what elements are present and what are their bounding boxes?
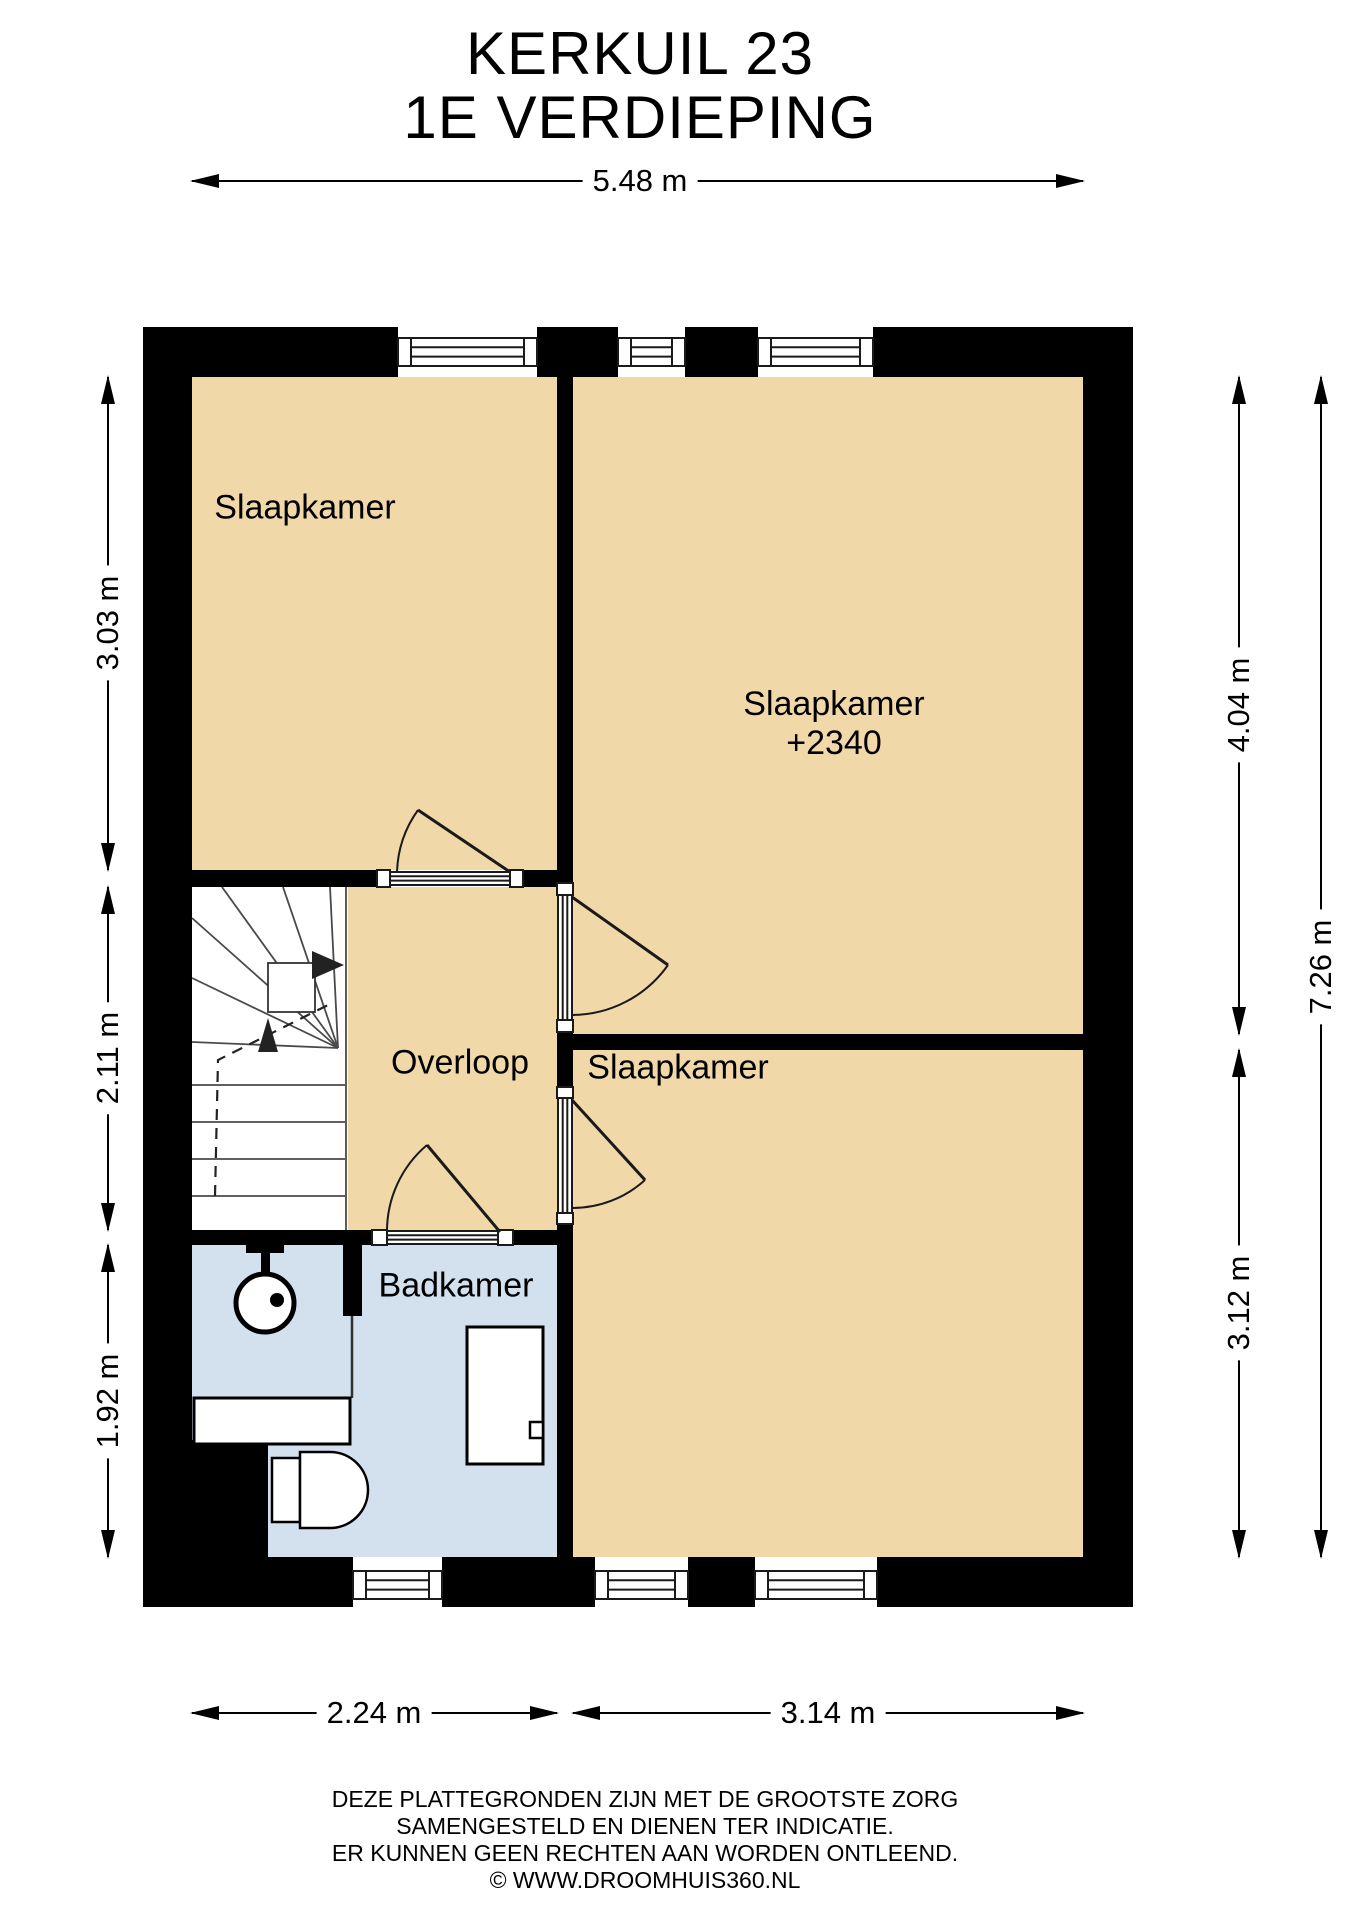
dim-left-upper: 3.03 m: [90, 566, 126, 681]
disclaimer-line3: ER KUNNEN GEEN RECHTEN AAN WORDEN ONTLEE…: [332, 1840, 959, 1867]
label-bedroom-bottom: Slaapkamer: [587, 1049, 768, 1088]
window-bottom-2: [755, 1571, 877, 1599]
toilet-icon: [272, 1452, 368, 1528]
dim-bottom-left: 2.24 m: [317, 1695, 432, 1731]
wall-toilet-nook: [192, 1440, 268, 1558]
floorplan-page: KERKUIL 23 1E VERDIEPING: [0, 0, 1358, 1920]
dim-top: 5.48 m: [583, 163, 698, 199]
window-top-3: [758, 338, 873, 366]
dim-left-lower: 1.92 m: [90, 1344, 126, 1459]
window-top-2: [618, 338, 685, 366]
wall-central-upper: [557, 377, 573, 883]
wall-bathroom-top-right: [513, 1230, 557, 1245]
washbasin-icon: [467, 1327, 543, 1464]
disclaimer-line2: SAMENGESTELD EN DIENEN TER INDICATIE.: [332, 1813, 959, 1840]
wall-exterior-right: [1083, 327, 1133, 1607]
room-bedroom-bottom: [573, 1050, 1083, 1557]
disclaimer-line1: DEZE PLATTEGRONDEN ZIJN MET DE GROOTSTE …: [332, 1786, 959, 1813]
dim-bottom-right: 3.14 m: [771, 1695, 886, 1731]
wall-bedroom1-bottom-left: [192, 870, 377, 887]
room-bedroom-top-left: [192, 377, 557, 870]
label-bathroom: Badkamer: [379, 1267, 534, 1306]
dim-right-total: 7.26 m: [1303, 910, 1339, 1025]
wall-central-lower: [557, 1224, 573, 1557]
shower-tray: [194, 1398, 350, 1444]
window-bottom-1: [595, 1571, 688, 1599]
disclaimer-line4: © WWW.DROOMHUIS360.NL: [332, 1867, 959, 1894]
label-landing: Overloop: [391, 1044, 529, 1083]
dim-left-middle: 2.11 m: [90, 1002, 126, 1114]
label-bedroom-right-name: Slaapkamer: [743, 685, 924, 724]
disclaimer: DEZE PLATTEGRONDEN ZIJN MET DE GROOTSTE …: [332, 1786, 959, 1894]
wall-shower-partition: [343, 1245, 362, 1316]
window-bathroom: [353, 1571, 442, 1599]
window-top-1: [398, 338, 537, 366]
wall-exterior-left: [143, 327, 192, 1607]
label-bedroom-right: Slaapkamer +2340: [743, 685, 924, 763]
wall-bathroom-top-left: [192, 1230, 372, 1245]
stair-landing: [268, 963, 315, 1012]
label-bedroom-top-left: Slaapkamer: [214, 489, 395, 528]
dim-right-lower: 3.12 m: [1221, 1246, 1257, 1361]
label-bedroom-right-note: +2340: [743, 724, 924, 763]
floorplan-drawing: [0, 0, 1358, 1920]
dim-right-upper: 4.04 m: [1221, 648, 1257, 763]
